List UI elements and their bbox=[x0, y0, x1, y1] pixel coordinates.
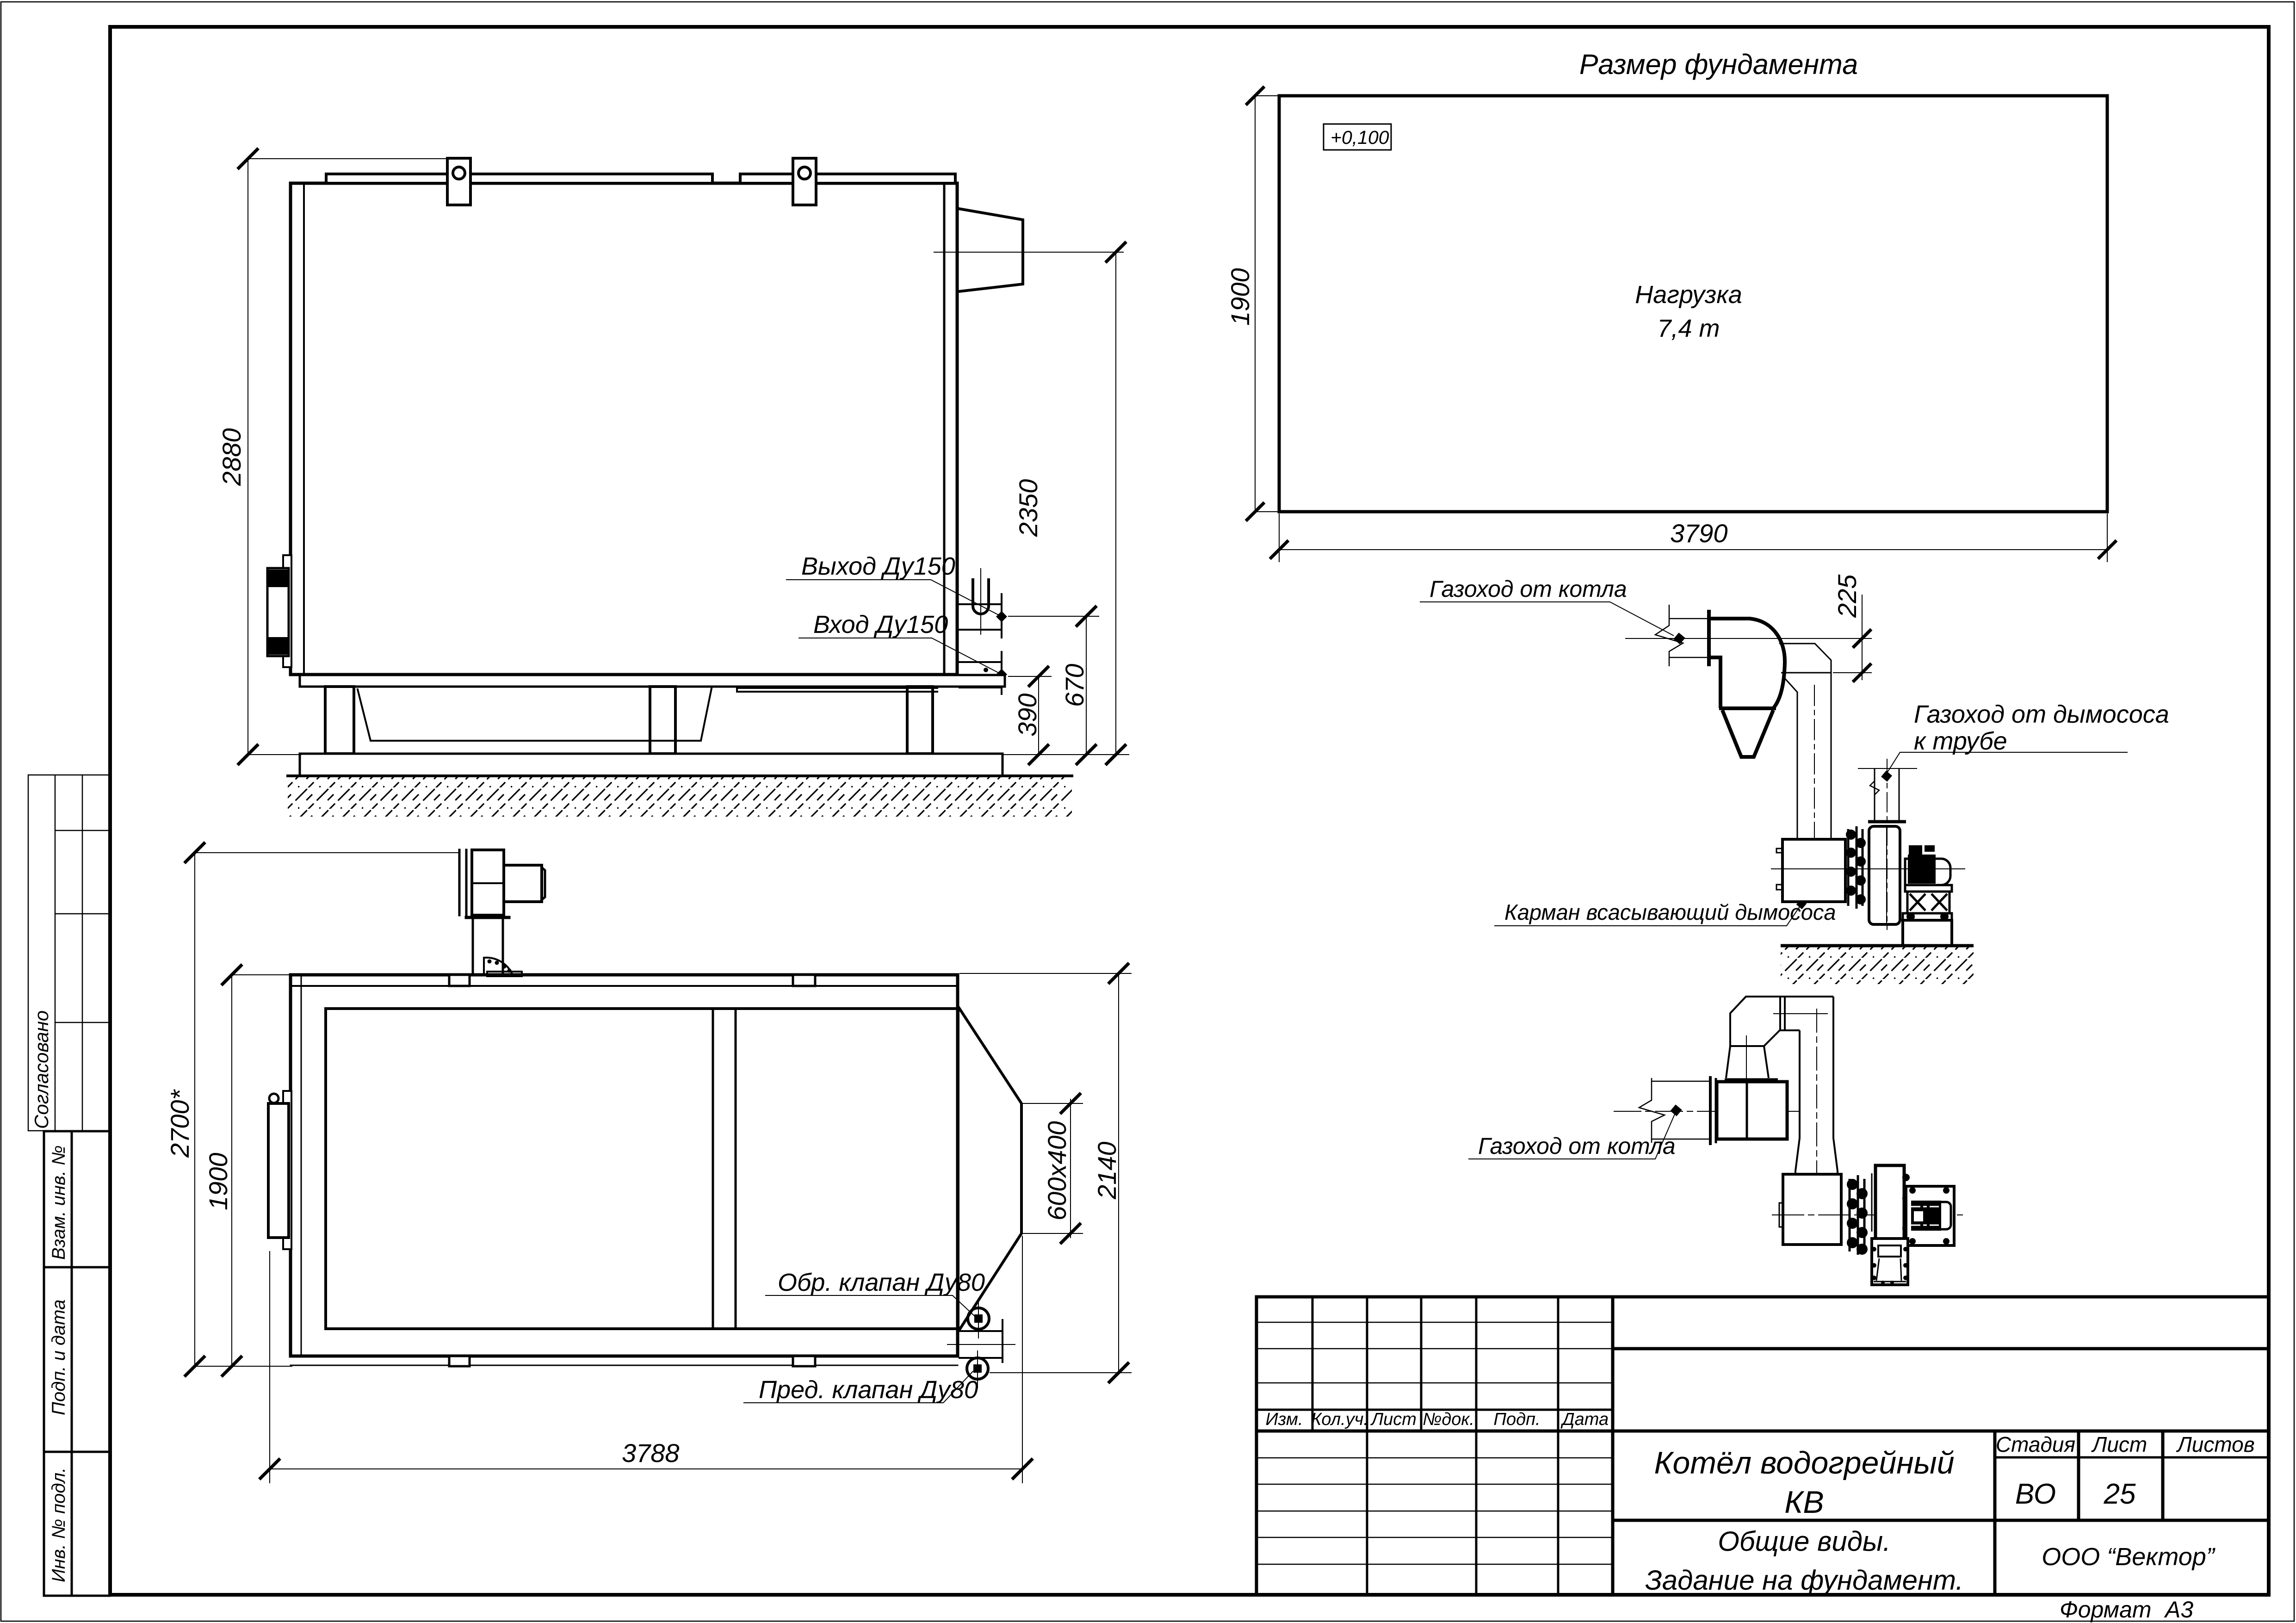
svg-text:Обр. клапан Ду80: Обр. клапан Ду80 bbox=[778, 1269, 985, 1296]
svg-text:Вход Ду150: Вход Ду150 bbox=[813, 611, 948, 638]
svg-text:Инв. № подл.: Инв. № подл. bbox=[49, 1468, 69, 1582]
svg-text:к трубе: к трубе bbox=[1914, 727, 2007, 755]
svg-text:Задание на фундамент.: Задание на фундамент. bbox=[1645, 1565, 1963, 1596]
svg-text:Газоход от дымососа: Газоход от дымососа bbox=[1914, 700, 2169, 728]
svg-text:Нагрузка: Нагрузка bbox=[1635, 281, 1742, 309]
svg-text:Формат: Формат bbox=[2060, 1597, 2152, 1623]
svg-text:Газоход от котла: Газоход от котла bbox=[1478, 1133, 1676, 1159]
svg-text:Кол.уч.: Кол.уч. bbox=[1311, 1410, 1368, 1429]
svg-text:А3: А3 bbox=[2164, 1597, 2193, 1623]
svg-text:ООО “Вектор”: ООО “Вектор” bbox=[2042, 1543, 2216, 1571]
svg-text:№док.: №док. bbox=[1423, 1410, 1474, 1429]
svg-text:3788: 3788 bbox=[622, 1438, 680, 1468]
svg-text:390: 390 bbox=[1013, 694, 1042, 737]
svg-text:1900: 1900 bbox=[1225, 268, 1255, 326]
svg-text:Согласовано: Согласовано bbox=[31, 1010, 52, 1129]
svg-text:КВ: КВ bbox=[1784, 1485, 1824, 1520]
svg-text:Газоход от котла: Газоход от котла bbox=[1430, 576, 1627, 602]
svg-text:600х400: 600х400 bbox=[1042, 1121, 1071, 1220]
svg-text:Котёл водогрейный: Котёл водогрейный bbox=[1654, 1445, 1954, 1481]
svg-text:3790: 3790 bbox=[1670, 519, 1728, 548]
svg-text:Лист: Лист bbox=[2091, 1432, 2147, 1456]
svg-text:670: 670 bbox=[1060, 664, 1089, 707]
svg-text:Общие виды.: Общие виды. bbox=[1718, 1526, 1891, 1557]
svg-text:1900: 1900 bbox=[204, 1152, 233, 1210]
svg-text:Листов: Листов bbox=[2176, 1432, 2255, 1456]
svg-text:Дата: Дата bbox=[1560, 1410, 1609, 1429]
svg-text:Пред. клапан Ду80: Пред. клапан Ду80 bbox=[759, 1376, 978, 1404]
svg-text:Размер фундамента: Размер фундамента bbox=[1579, 49, 1858, 80]
svg-text:2700*: 2700* bbox=[165, 1089, 194, 1158]
svg-text:Лист: Лист bbox=[1370, 1410, 1417, 1429]
svg-text:2350: 2350 bbox=[1014, 479, 1043, 537]
svg-text:Изм.: Изм. bbox=[1265, 1410, 1303, 1429]
svg-text:Карман всасывающий дымососа: Карман всасывающий дымососа bbox=[1504, 900, 1836, 924]
svg-text:Взам. инв. №: Взам. инв. № bbox=[49, 1146, 69, 1260]
svg-text:Стадия: Стадия bbox=[1996, 1432, 2075, 1456]
svg-text:7,4 т: 7,4 т bbox=[1657, 315, 1720, 342]
svg-text:225: 225 bbox=[1832, 574, 1862, 618]
svg-text:2140: 2140 bbox=[1092, 1141, 1121, 1200]
svg-text:Подп. и дата: Подп. и дата bbox=[49, 1300, 69, 1415]
svg-text:2880: 2880 bbox=[217, 428, 246, 486]
svg-text:Подп.: Подп. bbox=[1493, 1410, 1540, 1429]
svg-text:Выход Ду150: Выход Ду150 bbox=[801, 552, 955, 580]
svg-text:+0,100: +0,100 bbox=[1331, 127, 1389, 148]
svg-text:25: 25 bbox=[2104, 1478, 2136, 1510]
svg-text:ВО: ВО bbox=[2015, 1478, 2056, 1510]
